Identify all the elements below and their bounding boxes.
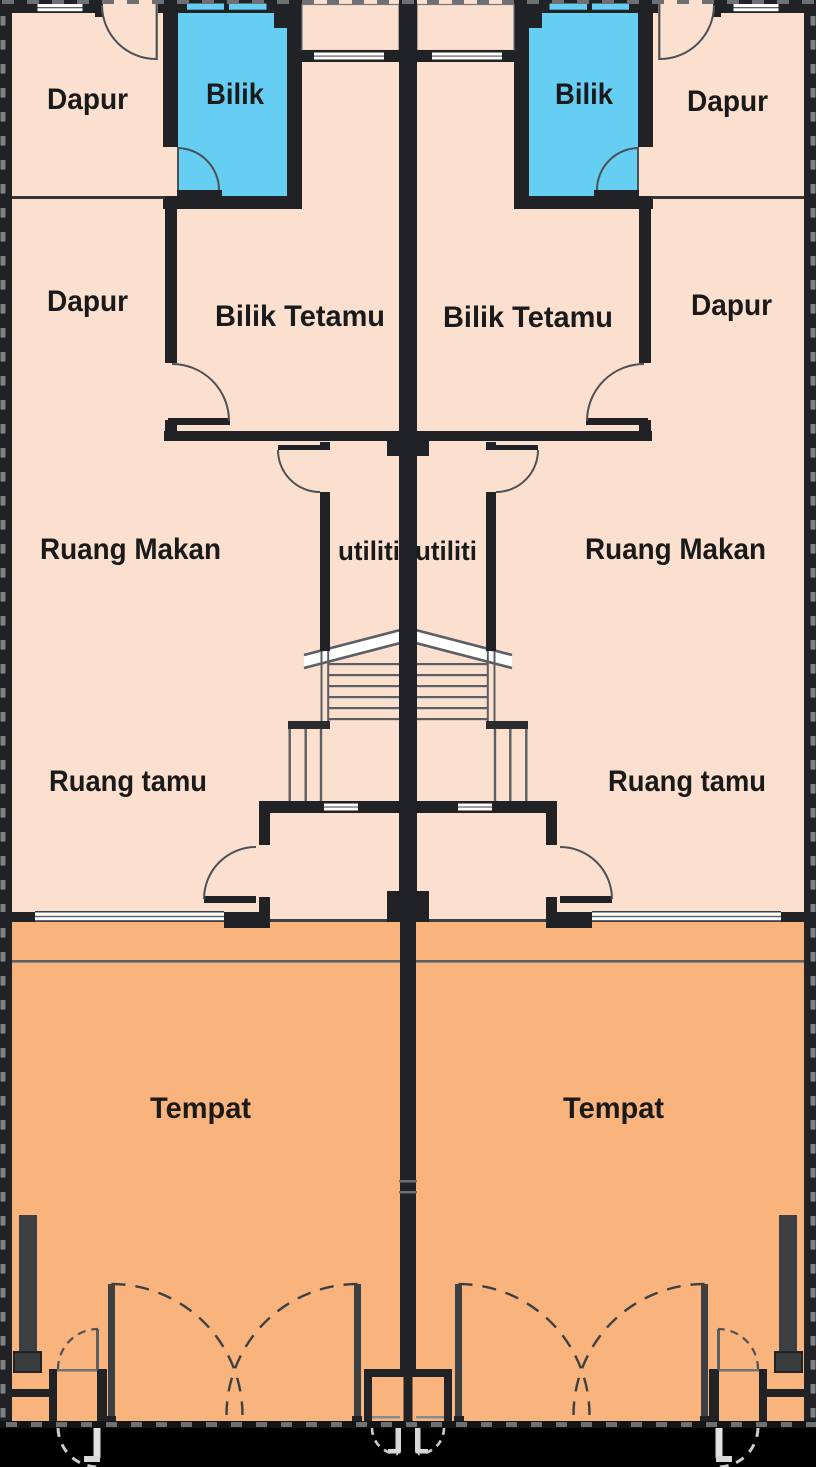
svg-text:Ruang tamu: Ruang tamu xyxy=(608,765,766,798)
svg-text:Bilik Tetamu: Bilik Tetamu xyxy=(443,301,613,334)
svg-text:Bilik Tetamu: Bilik Tetamu xyxy=(215,300,385,333)
svg-text:Dapur: Dapur xyxy=(47,83,128,116)
svg-text:Dapur: Dapur xyxy=(47,285,128,318)
svg-text:Bilik: Bilik xyxy=(555,78,613,111)
svg-text:Dapur: Dapur xyxy=(687,85,768,118)
svg-text:Dapur: Dapur xyxy=(691,289,772,322)
svg-text:Ruang tamu: Ruang tamu xyxy=(49,765,207,798)
svg-text:utiliti: utiliti xyxy=(338,536,400,566)
svg-text:Tempat: Tempat xyxy=(563,1092,664,1125)
svg-text:Tempat: Tempat xyxy=(150,1092,251,1125)
svg-text:Ruang Makan: Ruang Makan xyxy=(40,533,221,566)
svg-text:Ruang Makan: Ruang Makan xyxy=(585,533,766,566)
svg-text:utiliti: utiliti xyxy=(415,536,477,566)
svg-text:Bilik: Bilik xyxy=(206,78,264,111)
